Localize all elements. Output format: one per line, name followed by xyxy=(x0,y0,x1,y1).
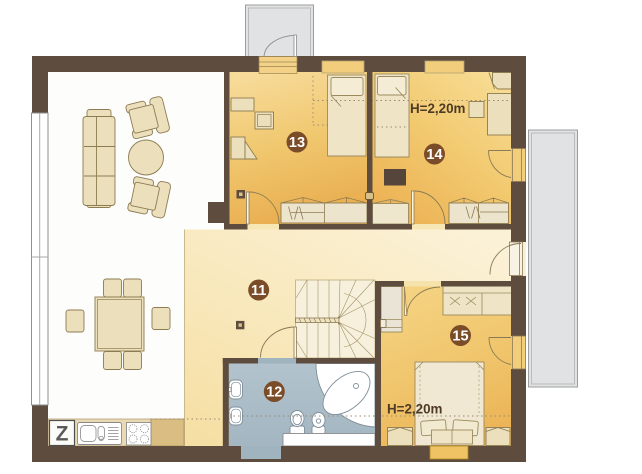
svg-text:11: 11 xyxy=(251,283,266,299)
svg-text:15: 15 xyxy=(452,329,468,345)
svg-text:12: 12 xyxy=(266,385,282,401)
svg-text:H=2,20m: H=2,20m xyxy=(410,101,466,116)
svg-text:14: 14 xyxy=(426,147,442,163)
svg-text:13: 13 xyxy=(289,135,305,151)
svg-text:H=2,20m: H=2,20m xyxy=(387,402,443,417)
svg-text:Z: Z xyxy=(56,423,69,446)
